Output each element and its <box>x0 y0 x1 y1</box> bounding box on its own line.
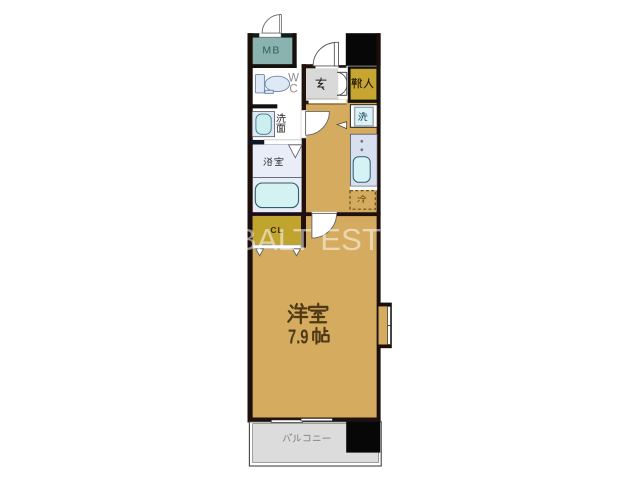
svg-text:MB: MB <box>262 45 280 57</box>
svg-text:7.9: 7.9 <box>288 326 309 348</box>
svg-text:C: C <box>289 84 297 96</box>
svg-text:BALT EST: BALT EST <box>236 222 381 257</box>
